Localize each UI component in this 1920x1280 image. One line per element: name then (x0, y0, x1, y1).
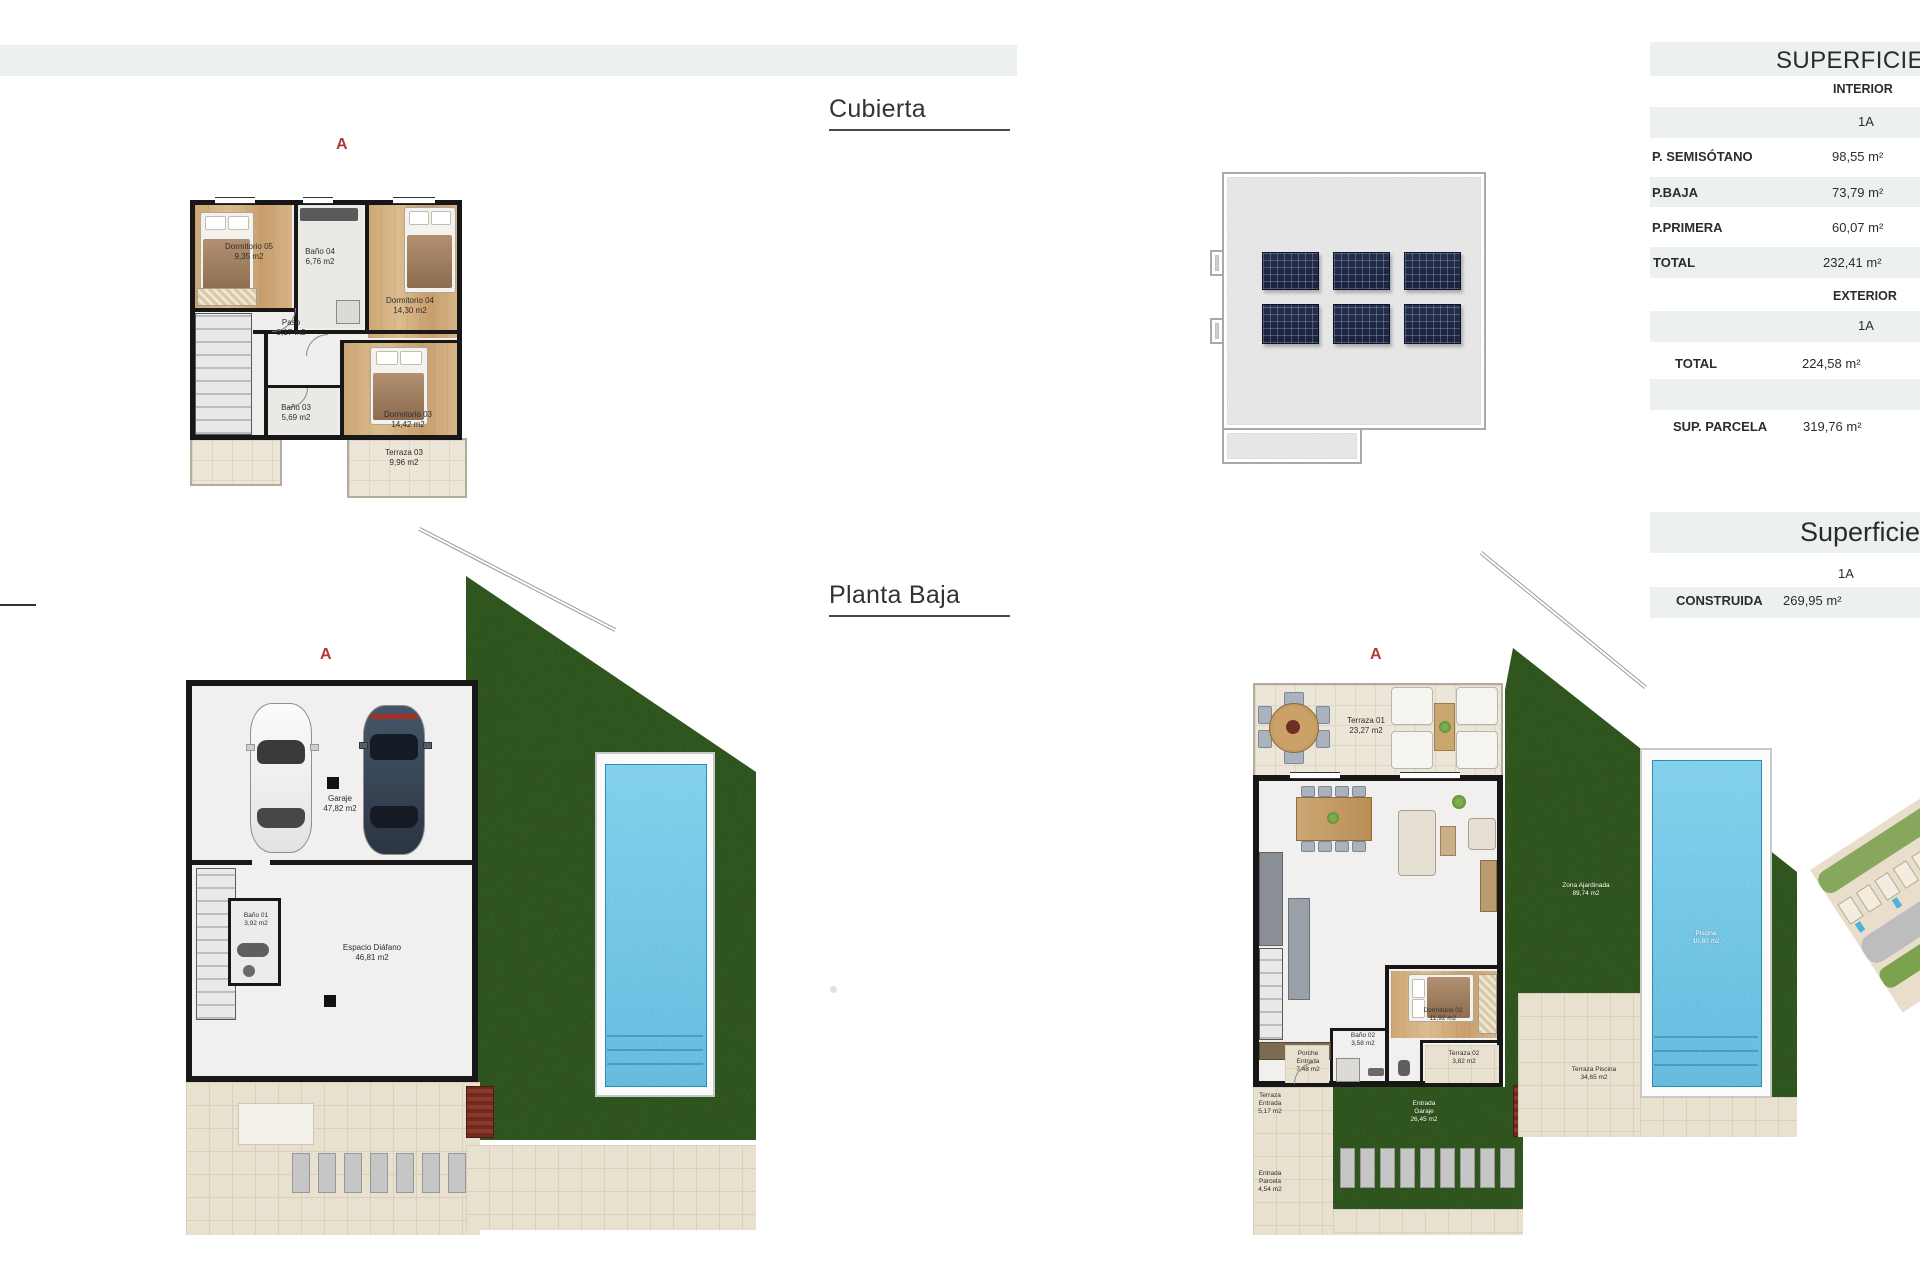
room-label: Zona Ajardinada89,74 m2 (1556, 882, 1616, 898)
exterior-column: 1A (1858, 318, 1874, 333)
terraza-piscina-floor2 (1640, 1097, 1797, 1137)
left-edge-underline (0, 604, 36, 606)
row-band (1650, 311, 1920, 342)
kitchen-counter (1259, 852, 1283, 946)
pool-lane (607, 1049, 703, 1051)
chair (1335, 841, 1349, 852)
room-label: Baño 023,58 m2 (1351, 1032, 1375, 1048)
kitchen-island (1288, 898, 1310, 1000)
boundary-fence (1479, 551, 1646, 689)
table2-column: 1A (1838, 566, 1854, 581)
lounge-chair (1456, 731, 1498, 769)
wardrobe (197, 288, 257, 306)
room-label: Espacio Diáfano46,81 m2 (343, 943, 401, 963)
plant (1452, 795, 1466, 809)
chair (1318, 786, 1332, 797)
plant (1327, 812, 1339, 824)
stepping-slab (1460, 1148, 1475, 1188)
wall (1420, 1040, 1503, 1043)
pool-left (605, 764, 707, 1087)
parcela-label: SUP. PARCELA (1673, 419, 1767, 434)
terraza-piscina-floor (1518, 993, 1643, 1137)
white-car (250, 703, 312, 853)
row-band (1650, 107, 1920, 138)
lounge-chair (1391, 731, 1433, 769)
sofa (1398, 810, 1436, 876)
row-label: TOTAL (1675, 356, 1717, 371)
lounge-chair (1391, 687, 1433, 725)
row-label: P.BAJA (1652, 185, 1698, 200)
pool-lane (1654, 1064, 1758, 1066)
bbq (466, 1086, 494, 1138)
chair (1335, 786, 1349, 797)
window (1400, 772, 1460, 779)
marker-a-semisotano: A (320, 646, 332, 664)
row-value: 232,41 m² (1823, 255, 1882, 270)
roof-tab (1210, 318, 1224, 344)
wall (1385, 965, 1389, 1083)
pool-lane (607, 1035, 703, 1037)
wall (1330, 1028, 1387, 1031)
stepping-slab (1500, 1148, 1515, 1188)
room-label: Piscina10,80 m2 (1684, 930, 1728, 946)
row-value: 73,79 m² (1832, 185, 1883, 200)
table2-title: Superficies (1800, 517, 1920, 548)
wall (192, 860, 252, 865)
stepping-slab (396, 1153, 414, 1193)
shower (336, 300, 360, 324)
stepping-slab (1400, 1148, 1415, 1188)
pool-lane (607, 1063, 703, 1065)
bath-counter (300, 208, 358, 221)
exterior-heading: EXTERIOR (1833, 289, 1897, 303)
row-value: 269,95 m² (1783, 593, 1842, 608)
row-label: P. SEMISÓTANO (1652, 149, 1753, 164)
roof-plan (1222, 172, 1486, 430)
primera-stairs (195, 313, 252, 435)
heading-cubierta: Cubierta (829, 95, 926, 124)
outdoor-table-set (1258, 692, 1328, 762)
side-table (1434, 703, 1455, 751)
lounge-chair (1456, 687, 1498, 725)
roof-extension (1222, 428, 1362, 464)
toilet (1398, 1060, 1410, 1076)
stepping-slab (448, 1153, 466, 1193)
chair (1318, 841, 1332, 852)
roof-tab (1210, 250, 1224, 276)
parcela-value: 319,76 m² (1803, 419, 1862, 434)
table1-title: SUPERFICIES (1776, 47, 1920, 75)
stepping-slab (318, 1153, 336, 1193)
solar-panel (1404, 252, 1461, 290)
wardrobe (1478, 974, 1497, 1034)
chair (1352, 841, 1366, 852)
sink (1368, 1068, 1384, 1076)
solar-panel (1262, 252, 1319, 290)
terraza-03-floor (347, 438, 467, 498)
window (215, 197, 255, 204)
bed (404, 207, 456, 293)
heading-planta-baja: Planta Baja (829, 581, 960, 610)
solar-panel (1333, 304, 1390, 344)
stepping-slab (370, 1153, 388, 1193)
room-label: Terraza 023,82 m2 (1449, 1050, 1480, 1066)
row-value: 98,55 m² (1832, 149, 1883, 164)
marker-a-baja: A (1370, 646, 1382, 664)
room-label: Garaje47,82 m2 (323, 794, 356, 814)
patio-square (238, 1103, 314, 1145)
room-label: Baño 035,69 m2 (281, 403, 311, 423)
room-label: Terraza 039,96 m2 (385, 448, 423, 468)
room-label: Baño 013,92 m2 (244, 912, 268, 928)
room-label: Dormitorio 0414,30 m2 (386, 296, 434, 316)
wall (270, 860, 476, 865)
column (324, 995, 336, 1007)
stepping-slab (1480, 1148, 1495, 1188)
shower (1336, 1058, 1360, 1082)
stepping-slab (1360, 1148, 1375, 1188)
armchair (1468, 818, 1496, 850)
room-label: Terraza 0123,27 m2 (1347, 716, 1385, 736)
marker-a-primera: A (336, 136, 348, 154)
row-value: 224,58 m² (1802, 356, 1861, 371)
site-map (1810, 783, 1920, 1038)
row-value: 60,07 m² (1832, 220, 1883, 235)
room-label: Terraza Entrada5,17 m2 (1253, 1092, 1287, 1116)
row-label: TOTAL (1653, 255, 1695, 270)
room-label: Entrada Parcela4,54 m2 (1253, 1170, 1287, 1194)
stepping-slab (1440, 1148, 1455, 1188)
heading-cubierta-underline (829, 129, 1010, 131)
pool-lane (1654, 1036, 1758, 1038)
row-label: P.PRIMERA (1652, 220, 1723, 235)
room-label: Dormitorio 0314,42 m2 (384, 410, 432, 430)
window (1290, 772, 1340, 779)
chair (1352, 786, 1366, 797)
heading-planta-baja-underline (829, 615, 1010, 617)
chair (1301, 786, 1315, 797)
dark-car (363, 705, 425, 855)
solar-panel (1333, 252, 1390, 290)
row-label: CONSTRUIDA (1676, 593, 1763, 608)
room-label: Terraza Piscina34,65 m2 (1566, 1066, 1622, 1082)
room-label: Paso9,17 m2 (277, 318, 306, 338)
plan-sheet: Cubierta Planta Baja A (0, 0, 1920, 1280)
column (327, 777, 339, 789)
window (303, 197, 333, 204)
room-label: Entrada Garaje26,45 m2 (1404, 1100, 1444, 1124)
room-label: Dormitorio 0211,92 m2 (1423, 1007, 1462, 1023)
interior-column: 1A (1858, 114, 1874, 129)
stepping-slab (1380, 1148, 1395, 1188)
wall (340, 340, 344, 435)
coffee-table (1440, 826, 1456, 856)
stepping-slab (422, 1153, 440, 1193)
terrace-left-bottom2 (466, 1145, 756, 1230)
annex-lower-left (190, 438, 282, 486)
driveway-bottom (1333, 1209, 1523, 1235)
pool-lane (1654, 1050, 1758, 1052)
stepping-slab (1420, 1148, 1435, 1188)
room-label: Dormitorio 059,35 m2 (225, 242, 273, 262)
stepping-slab (292, 1153, 310, 1193)
stepping-slab (1340, 1148, 1355, 1188)
solar-panel (1262, 304, 1319, 344)
chair (1301, 841, 1315, 852)
wall (1385, 965, 1503, 969)
window (393, 197, 435, 204)
wall (264, 330, 268, 435)
wall (343, 340, 457, 343)
wall (365, 202, 369, 330)
room-label: Baño 046,76 m2 (305, 247, 335, 267)
wall (1420, 1040, 1423, 1085)
solar-panel (1404, 304, 1461, 344)
row-band (1650, 379, 1920, 410)
stepping-slab (344, 1153, 362, 1193)
top-band (0, 45, 1017, 76)
tv-unit (1480, 860, 1497, 912)
interior-heading: INTERIOR (1833, 82, 1893, 96)
baja-stairs (1259, 948, 1283, 1040)
watermark-dot (830, 986, 837, 993)
